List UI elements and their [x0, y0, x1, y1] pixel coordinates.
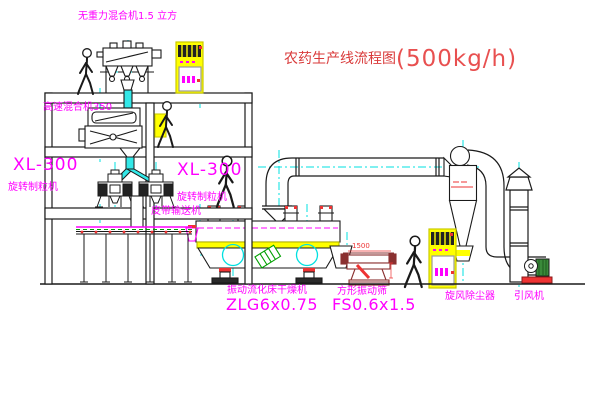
person-ground [405, 236, 422, 287]
diagram-title: 农药生产线流程图(500kg/h) [284, 46, 517, 72]
title-text: 农药生产线流程图 [284, 51, 396, 67]
label-granulator-left-model: XL-300 [13, 157, 78, 174]
granulator-left [95, 170, 135, 207]
label-fan: 引风机 [514, 292, 544, 302]
label-screen-model: FS0.6x1.5 [332, 297, 416, 313]
dryer-legs [212, 268, 322, 283]
label-granulator-left-name: 旋转制粒机 [8, 183, 58, 193]
screen-dimension-text: 1500 [352, 242, 370, 250]
label-gravity-mixer: 无重力混合机1.5 立方 [78, 12, 177, 22]
label-high-speed-mixer: 高速混合机350 [43, 103, 112, 113]
label-fluid-bed-model: ZLG6x0.75 [226, 297, 318, 313]
label-cyclone: 旋风除尘器 [445, 292, 495, 302]
label-granulator-mid-model: XL-300 [177, 162, 242, 179]
title-capacity: (500kg/h) [396, 46, 517, 72]
person-roof [78, 49, 93, 94]
label-granulator-mid-name: 旋转制粒机 [177, 193, 227, 203]
person-2nd-floor [158, 102, 173, 147]
vibrating-screen [341, 251, 396, 285]
control-cabinet-right [429, 229, 456, 288]
control-cabinet-roof [176, 42, 203, 93]
label-belt-conveyor: 皮带输送机 [151, 207, 201, 217]
cad-flow-diagram: 农药生产线流程图(500kg/h) 无重力混合机1.5 立方 高速混合机350 … [0, 0, 600, 403]
induced-draft-fan [522, 259, 552, 283]
belt-conveyor [76, 227, 192, 282]
cyclone-outlet-pipe [467, 150, 546, 275]
chute-column [131, 196, 143, 227]
